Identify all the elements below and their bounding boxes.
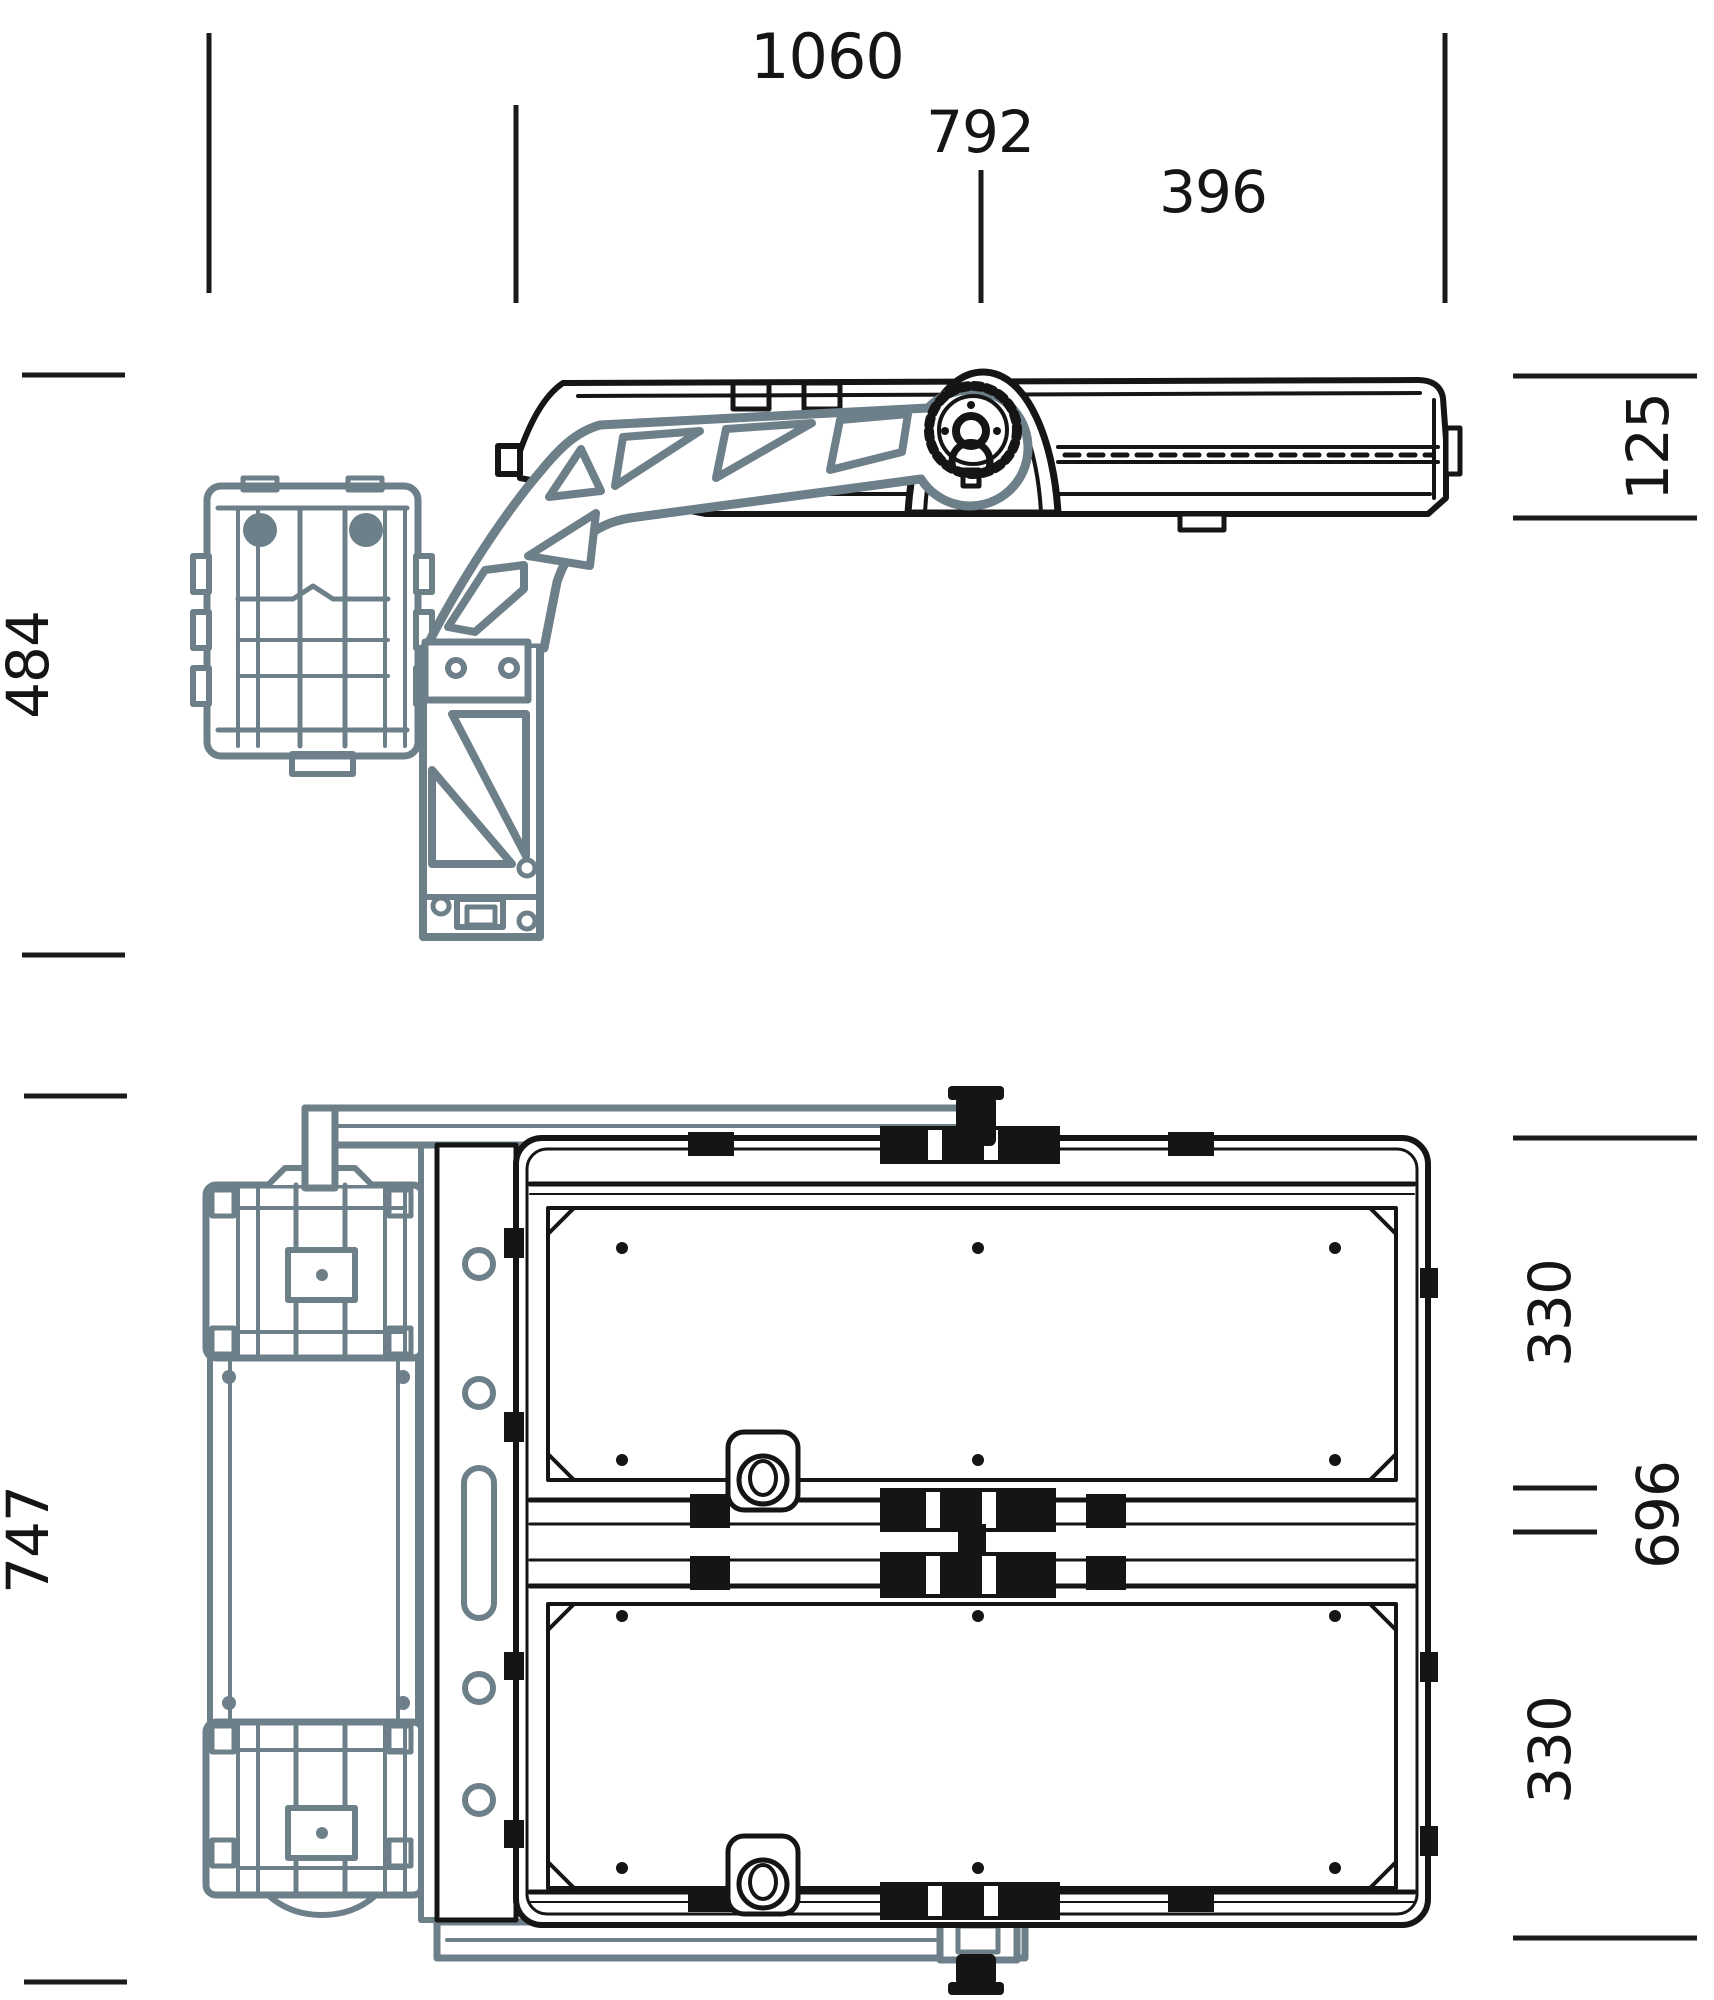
back-view: 747 330 696 330	[0, 1086, 1697, 1995]
dim-label-body-height: 696	[1624, 1461, 1692, 1569]
dim-body-width: 792	[516, 98, 1034, 303]
mounting-plate-back	[437, 1145, 516, 1920]
dimension-drawing-canvas: 1060 792 396	[0, 0, 1714, 2000]
dim-arm-height: 484	[0, 375, 125, 955]
tilt-knob-top	[948, 1086, 1004, 1146]
dim-label-body-width: 792	[926, 98, 1034, 166]
bottom-tab	[1180, 514, 1224, 530]
dim-module-width: 396	[981, 158, 1267, 303]
side-view: 125 484	[0, 372, 1697, 955]
front-clip	[498, 446, 520, 474]
dim-label-module-width: 396	[1159, 158, 1267, 226]
dim-label-overall-width: 1060	[750, 20, 904, 93]
dim-bottom-module-height: 330	[1513, 1696, 1697, 1938]
tilt-knob-bottom	[948, 1954, 1004, 1995]
dim-label-body-depth: 125	[1614, 393, 1682, 501]
dim-overall-height: 747	[0, 1096, 127, 1982]
technical-drawing-page: 1060 792 396	[0, 0, 1714, 2000]
dim-body-depth: 125	[1513, 376, 1697, 518]
dim-body-height: 696	[1513, 1461, 1692, 1569]
end-clip	[1446, 428, 1460, 474]
pole-clamp-bracket-side	[193, 478, 432, 774]
pole-clamp-bracket-back	[206, 1168, 423, 1915]
dim-label-arm-height: 484	[0, 611, 62, 719]
luminaire-back-panel	[504, 1126, 1438, 1925]
dim-label-top-module-height: 330	[1516, 1259, 1584, 1367]
dim-label-overall-height: 747	[0, 1486, 62, 1594]
bolt-hole	[349, 513, 383, 547]
arm-mounting-plate	[425, 642, 528, 700]
dim-label-bottom-module-height: 330	[1516, 1696, 1584, 1804]
dim-top-module-height: 330	[1513, 1138, 1697, 1488]
cable-gland-lower	[728, 1836, 798, 1914]
cable-gland-upper	[728, 1432, 798, 1510]
